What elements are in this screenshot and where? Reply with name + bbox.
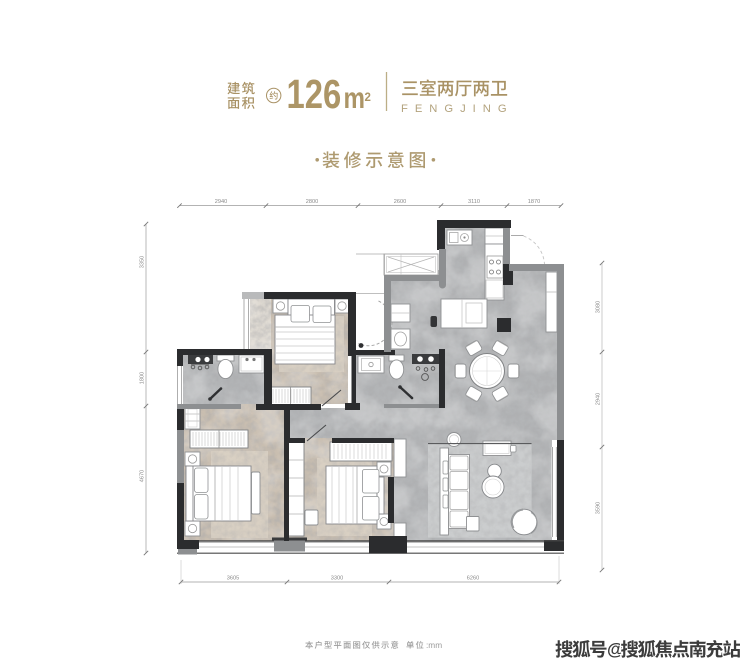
svg-text:2940: 2940 (215, 199, 227, 205)
svg-text:FENGJING: FENGJING (401, 103, 514, 115)
svg-text:m: m (344, 82, 366, 115)
svg-text:3080: 3080 (596, 301, 602, 313)
svg-text:3110: 3110 (468, 199, 480, 205)
svg-text:3590: 3590 (596, 502, 602, 514)
svg-text:6260: 6260 (467, 576, 479, 582)
svg-text:2940: 2940 (596, 393, 602, 405)
svg-text:3350: 3350 (140, 256, 146, 268)
svg-text:2800: 2800 (306, 199, 318, 205)
svg-text:3300: 3300 (331, 576, 343, 582)
svg-text::mm: :mm (426, 640, 442, 650)
svg-text:126: 126 (287, 70, 342, 116)
svg-text:2: 2 (365, 92, 371, 104)
svg-text:2600: 2600 (394, 199, 406, 205)
svg-text:1800: 1800 (140, 372, 146, 384)
svg-text:3605: 3605 (227, 576, 239, 582)
svg-text:1870: 1870 (528, 199, 540, 205)
svg-text:4670: 4670 (140, 470, 146, 482)
